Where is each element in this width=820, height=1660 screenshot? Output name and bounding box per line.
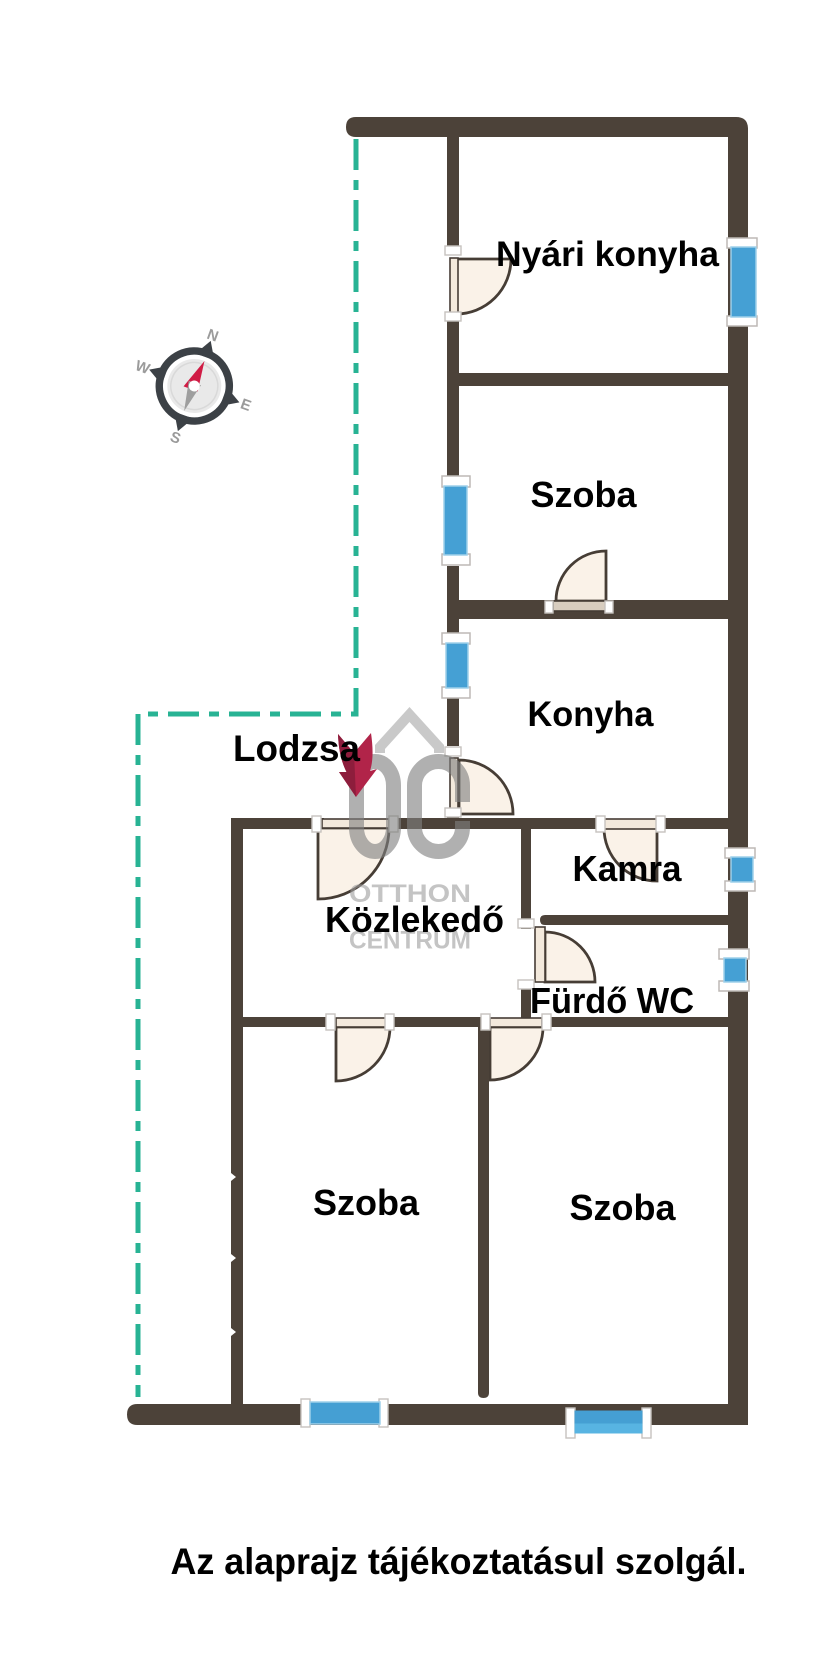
svg-text:Az alaprajz tájékoztatásul szo: Az alaprajz tájékoztatásul szolgál. — [171, 1541, 747, 1582]
svg-text:Közlekedő: Közlekedő — [325, 899, 504, 940]
svg-text:Kamra: Kamra — [573, 848, 683, 889]
svg-text:Lodzsa: Lodzsa — [233, 728, 360, 769]
svg-text:Szoba: Szoba — [570, 1187, 677, 1228]
svg-text:Nyári konyha: Nyári konyha — [496, 234, 719, 274]
svg-text:Szoba: Szoba — [531, 474, 638, 515]
svg-text:Konyha: Konyha — [528, 695, 655, 734]
svg-text:Fürdő WC: Fürdő WC — [530, 980, 694, 1021]
svg-text:Szoba: Szoba — [313, 1182, 420, 1223]
